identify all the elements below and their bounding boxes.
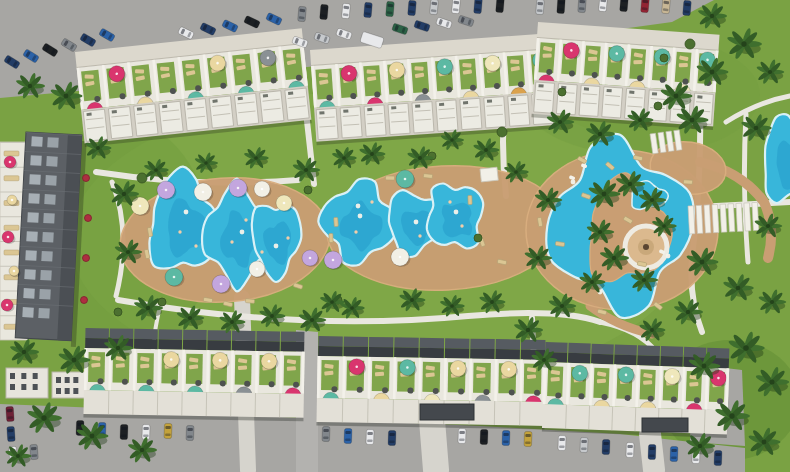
car xyxy=(496,0,505,13)
dark-roof xyxy=(470,339,495,349)
apartment-block xyxy=(542,342,730,438)
terrace-garden xyxy=(363,65,381,96)
dark-roof xyxy=(256,331,280,341)
aerial-resort-render xyxy=(0,0,790,472)
sun-lounger xyxy=(385,176,394,180)
car xyxy=(344,428,352,443)
facade xyxy=(83,390,303,418)
sun-lounger xyxy=(140,364,149,369)
car xyxy=(322,426,330,441)
terrace-garden xyxy=(507,55,525,86)
dark-roof xyxy=(85,328,109,338)
dark-roof xyxy=(394,337,419,347)
swimmer xyxy=(178,230,181,233)
bush xyxy=(114,308,122,316)
window xyxy=(45,175,57,186)
pool-float xyxy=(356,204,361,209)
dark-roof xyxy=(420,338,445,348)
flower-planter xyxy=(85,215,92,222)
pool-float xyxy=(358,214,363,219)
sun-lounger xyxy=(4,225,19,230)
car xyxy=(186,425,194,440)
sun-lounger xyxy=(329,233,333,242)
car xyxy=(30,444,39,459)
window xyxy=(30,155,42,166)
window xyxy=(42,232,54,243)
car xyxy=(626,442,634,457)
car xyxy=(430,0,439,15)
sun-lounger xyxy=(85,75,94,79)
sun-lounger xyxy=(185,64,194,68)
sun-lounger xyxy=(426,373,435,378)
flower-planter xyxy=(83,255,90,262)
dark-roof xyxy=(344,336,369,346)
balcony xyxy=(534,82,555,113)
sun-lounger xyxy=(588,57,597,61)
apartment-block xyxy=(310,33,556,145)
car xyxy=(298,6,307,22)
window xyxy=(28,193,40,204)
car xyxy=(474,0,483,14)
car xyxy=(580,437,588,452)
car xyxy=(641,0,650,13)
balcony xyxy=(556,84,577,115)
sun-lounger xyxy=(236,59,245,63)
sun-lounger xyxy=(633,60,642,64)
car xyxy=(557,0,566,14)
bush xyxy=(685,39,695,49)
swimmer xyxy=(418,234,421,237)
window xyxy=(40,270,52,281)
sun-lounger xyxy=(287,366,296,371)
bush xyxy=(304,186,312,194)
dark-roof xyxy=(638,345,660,356)
car xyxy=(386,1,395,17)
swimmer xyxy=(244,218,247,221)
window xyxy=(29,174,41,185)
terrace-garden xyxy=(315,69,333,100)
car xyxy=(558,435,566,450)
sun-lounger xyxy=(286,53,295,57)
car xyxy=(120,424,128,439)
swimmer xyxy=(448,200,451,203)
sun-lounger xyxy=(679,63,688,67)
dark-roof xyxy=(521,340,546,350)
sun-lounger xyxy=(238,365,247,370)
sun-lounger xyxy=(4,250,19,255)
window xyxy=(31,136,43,147)
window xyxy=(27,212,39,223)
swimmer xyxy=(354,230,357,233)
car xyxy=(524,431,532,446)
dark-roof xyxy=(614,344,636,355)
sun-lounger xyxy=(510,60,519,65)
window xyxy=(22,307,34,318)
dark-roof xyxy=(591,344,613,355)
window xyxy=(41,251,53,262)
apartment-block xyxy=(83,328,305,421)
sun-lounger xyxy=(324,371,333,376)
sun-lounger xyxy=(319,73,328,78)
flower-planter xyxy=(83,175,90,182)
bush xyxy=(137,173,147,183)
car xyxy=(7,426,16,441)
dark-roof xyxy=(369,337,394,347)
car xyxy=(536,0,545,15)
car xyxy=(342,3,351,19)
sun-lounger xyxy=(135,69,144,73)
car xyxy=(364,2,373,18)
sun-lounger xyxy=(643,380,652,385)
sun-lounger xyxy=(423,174,432,179)
bush xyxy=(558,88,566,96)
pool-float xyxy=(454,210,459,215)
pool-float xyxy=(666,254,671,259)
window xyxy=(39,289,51,300)
car xyxy=(164,423,172,438)
car xyxy=(648,444,656,459)
dark-roof xyxy=(496,339,521,349)
window xyxy=(43,213,55,224)
swimmer xyxy=(194,244,197,247)
car xyxy=(366,429,374,444)
swimmer xyxy=(286,236,289,239)
sun-lounger xyxy=(468,195,472,204)
car xyxy=(578,0,587,13)
window xyxy=(23,288,35,299)
dark-roof xyxy=(232,331,256,341)
car xyxy=(6,406,15,421)
car xyxy=(602,439,610,454)
window xyxy=(26,231,38,242)
window xyxy=(25,250,37,261)
sun-lounger xyxy=(414,66,423,71)
swimmer xyxy=(460,224,463,227)
pool-float xyxy=(274,244,279,249)
car xyxy=(620,0,629,12)
dark-roof xyxy=(134,329,158,339)
entrance-canopy xyxy=(642,418,688,432)
dark-roof xyxy=(183,330,207,340)
sun-lounger xyxy=(551,377,560,382)
balcony xyxy=(602,87,623,118)
sun-lounger xyxy=(367,70,376,75)
car xyxy=(683,0,692,16)
sun-lounger xyxy=(375,372,384,377)
dark-roof xyxy=(318,336,343,346)
window xyxy=(24,269,36,280)
dark-roof xyxy=(707,348,729,359)
sun-lounger xyxy=(189,364,198,369)
sun-lounger xyxy=(543,54,552,58)
sun-lounger xyxy=(476,373,485,378)
dark-roof xyxy=(661,346,683,357)
dark-roof xyxy=(159,329,183,339)
tower-building xyxy=(15,132,87,347)
dark-roof xyxy=(281,331,305,341)
car xyxy=(662,0,671,14)
bush xyxy=(158,298,166,306)
bush xyxy=(474,234,482,242)
balcony xyxy=(579,85,600,116)
car xyxy=(388,430,396,445)
window xyxy=(46,156,58,167)
sun-lounger xyxy=(116,363,125,368)
car xyxy=(599,0,608,12)
car xyxy=(320,4,329,20)
terrace-garden xyxy=(411,62,429,93)
pool-float xyxy=(414,220,419,225)
car xyxy=(452,0,461,14)
car xyxy=(458,428,466,443)
sun-lounger xyxy=(597,379,606,384)
dark-roof xyxy=(445,338,470,348)
small-building xyxy=(6,368,48,398)
sun-lounger xyxy=(245,299,254,304)
terrace-garden xyxy=(459,59,477,90)
swimmer xyxy=(370,200,373,203)
swimmer xyxy=(230,240,233,243)
car xyxy=(408,0,417,16)
sun-lounger xyxy=(555,241,564,246)
bush xyxy=(660,54,668,62)
bush xyxy=(654,102,662,110)
pool-float xyxy=(184,210,189,215)
sun-lounger xyxy=(527,374,536,379)
car xyxy=(480,429,488,444)
sun-lounger xyxy=(683,180,692,185)
bush xyxy=(497,127,507,137)
entrance-canopy xyxy=(420,404,474,420)
lounger-row xyxy=(688,202,759,234)
cabana xyxy=(480,167,498,182)
pool-float xyxy=(571,180,576,185)
car xyxy=(714,450,722,465)
window xyxy=(47,137,59,148)
apartment-block xyxy=(531,22,719,130)
sun-lounger xyxy=(334,217,339,226)
sun-lounger xyxy=(160,67,169,71)
scene-svg xyxy=(0,0,790,472)
sun-lounger xyxy=(4,176,19,181)
sun-lounger xyxy=(4,151,19,156)
sun-lounger xyxy=(462,63,471,68)
flower-planter xyxy=(81,297,88,304)
pool-float xyxy=(240,230,245,235)
sun-lounger xyxy=(91,363,100,368)
car xyxy=(502,430,510,445)
window xyxy=(44,194,56,205)
swimmer xyxy=(260,250,263,253)
car xyxy=(670,446,678,461)
small-building xyxy=(52,372,86,398)
sun-lounger xyxy=(689,382,698,387)
dark-roof xyxy=(568,343,590,354)
window xyxy=(38,308,50,319)
